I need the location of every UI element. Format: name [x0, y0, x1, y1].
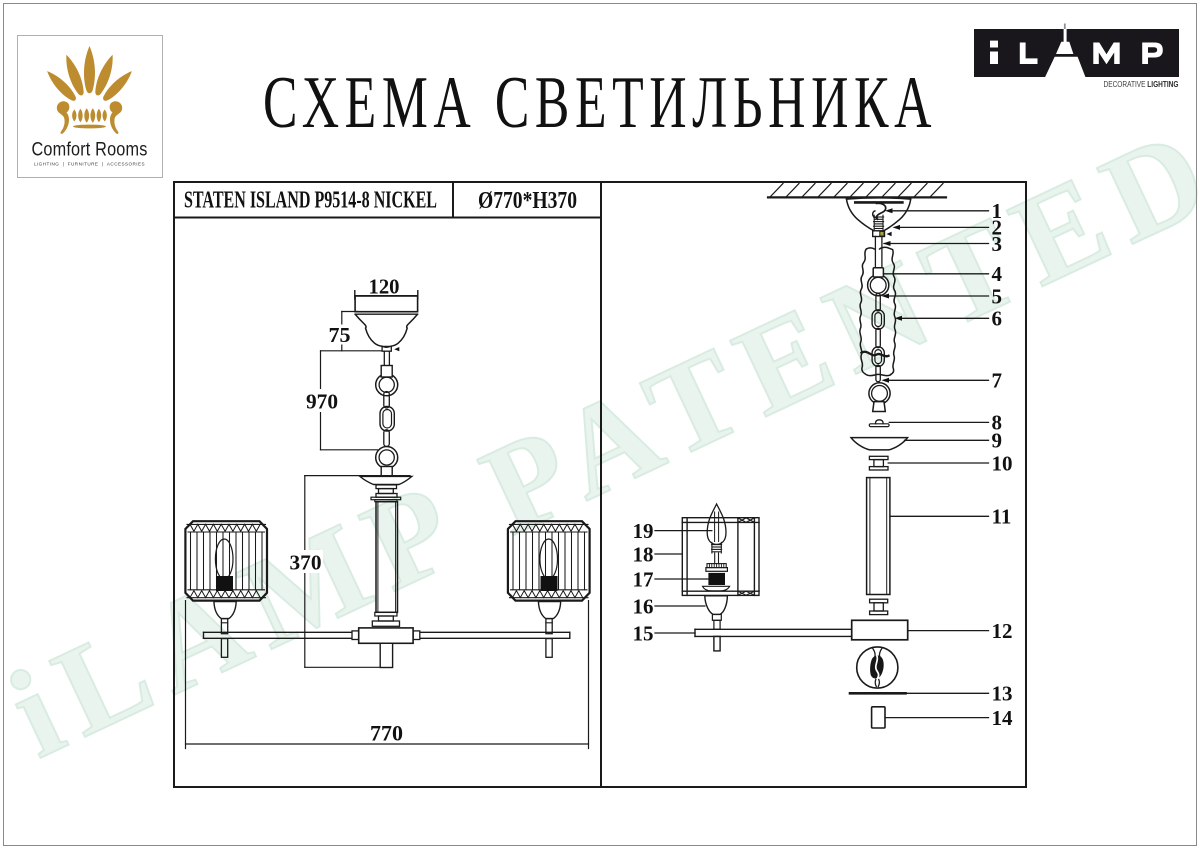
- svg-text:Ø770*H370: Ø770*H370: [478, 188, 577, 214]
- svg-text:6: 6: [992, 307, 1003, 331]
- svg-text:14: 14: [992, 706, 1014, 730]
- svg-text:17: 17: [633, 567, 654, 591]
- svg-text:4: 4: [992, 262, 1003, 286]
- svg-text:19: 19: [633, 519, 654, 543]
- svg-text:9: 9: [992, 429, 1003, 453]
- svg-text:970: 970: [306, 390, 338, 414]
- svg-text:18: 18: [633, 542, 654, 566]
- svg-text:STATEN ISLAND P9514-8 NICKEL: STATEN ISLAND P9514-8 NICKEL: [184, 188, 437, 214]
- svg-text:75: 75: [329, 323, 351, 347]
- svg-text:5: 5: [992, 284, 1003, 308]
- svg-text:16: 16: [633, 594, 654, 618]
- svg-text:120: 120: [369, 275, 400, 299]
- svg-text:770: 770: [370, 721, 403, 746]
- svg-text:3: 3: [992, 232, 1003, 256]
- svg-text:13: 13: [992, 682, 1013, 706]
- svg-text:15: 15: [633, 621, 654, 645]
- svg-text:11: 11: [992, 505, 1012, 529]
- svg-text:370: 370: [290, 551, 322, 575]
- svg-text:10: 10: [992, 451, 1013, 475]
- svg-text:12: 12: [992, 619, 1013, 643]
- svg-text:7: 7: [992, 369, 1003, 393]
